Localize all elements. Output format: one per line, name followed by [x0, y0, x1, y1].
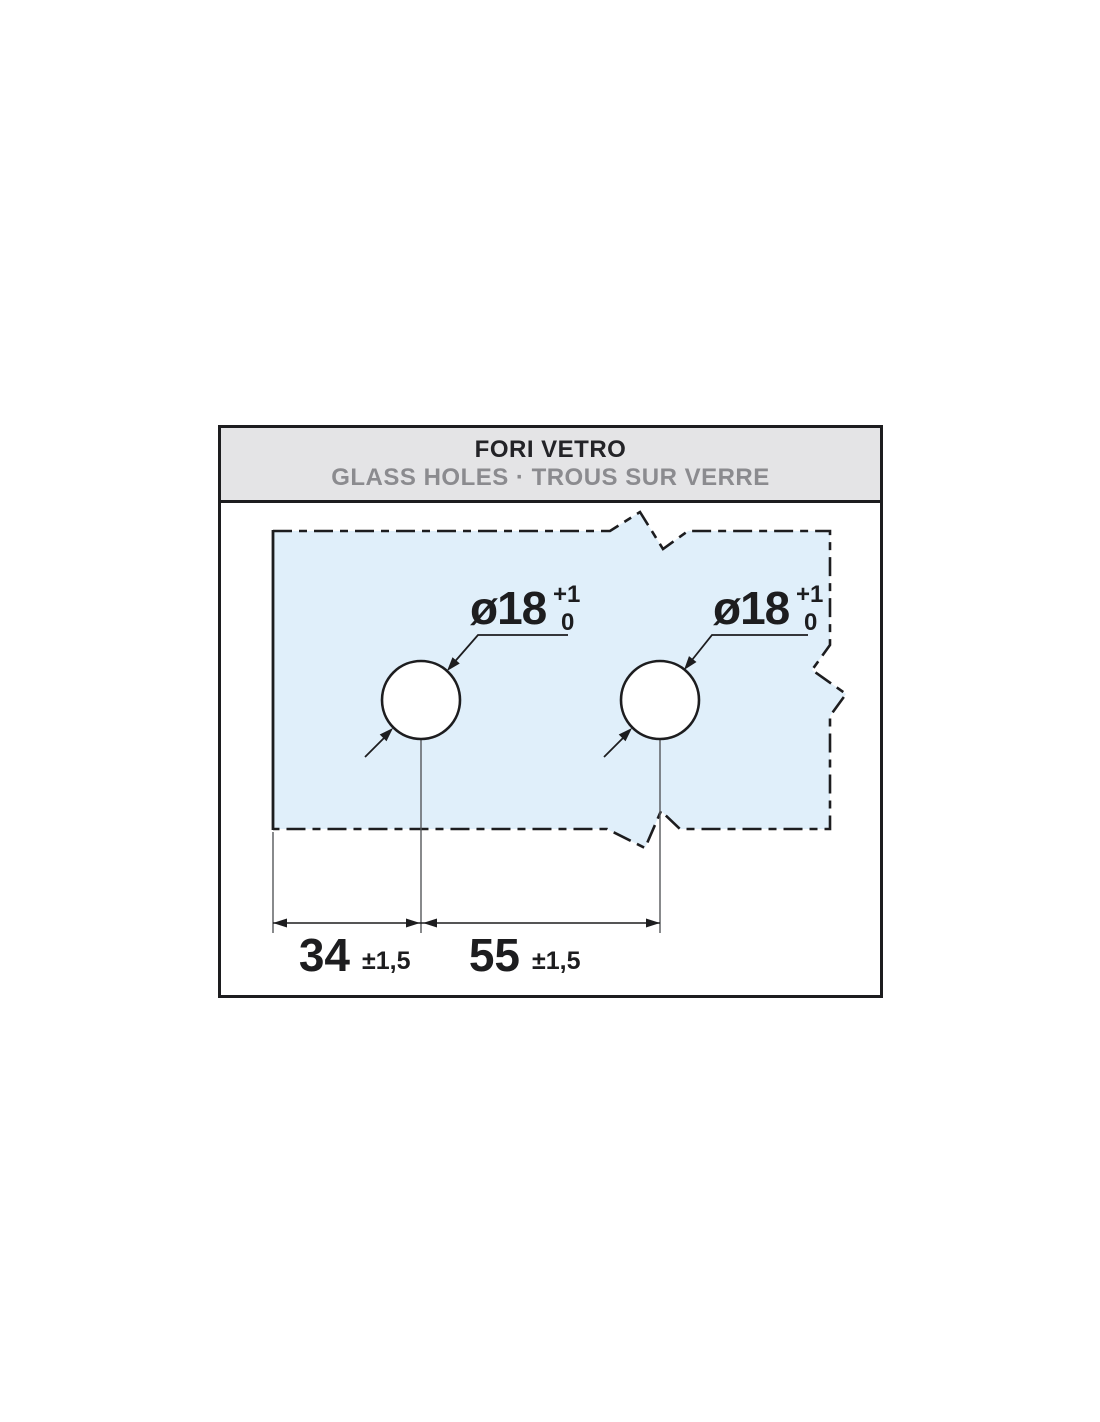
dimension-arrowhead-mid-right: [423, 919, 437, 928]
hole-1-tolerance-lower: 0: [561, 609, 574, 636]
dimension-arrowhead-left: [273, 919, 287, 928]
hole-circle-1: [382, 661, 460, 739]
hole-2-tolerance-lower: 0: [804, 609, 817, 636]
drawing-sheet: FORI VETRO GLASS HOLES · TROUS SUR VERRE: [218, 425, 883, 998]
hole-2-tolerance-upper: +1: [796, 581, 823, 608]
dimension-value-34: 34: [299, 929, 351, 981]
page: FORI VETRO GLASS HOLES · TROUS SUR VERRE: [0, 0, 1100, 1422]
glass-panel: [273, 512, 846, 848]
dimension-tolerance-55: ±1,5: [532, 947, 581, 975]
sheet-header: FORI VETRO GLASS HOLES · TROUS SUR VERRE: [221, 428, 880, 503]
glass-holes-diagram: ø18 +1 0 ø18 +1 0: [221, 503, 878, 995]
hole-1-diameter-label: ø18: [470, 582, 547, 634]
dimension-arrowhead-right: [646, 919, 660, 928]
dimension-arrowhead-mid-left: [406, 919, 420, 928]
hole-1-tolerance-upper: +1: [553, 581, 580, 608]
sheet-title: FORI VETRO: [475, 437, 627, 463]
sheet-subtitle: GLASS HOLES · TROUS SUR VERRE: [331, 465, 770, 491]
hole-2-diameter-label: ø18: [713, 582, 790, 634]
hole-circle-2: [621, 661, 699, 739]
dimension-tolerance-34: ±1,5: [362, 947, 411, 975]
drawing-canvas: ø18 +1 0 ø18 +1 0: [221, 503, 878, 995]
dimension-value-55: 55: [469, 929, 520, 981]
